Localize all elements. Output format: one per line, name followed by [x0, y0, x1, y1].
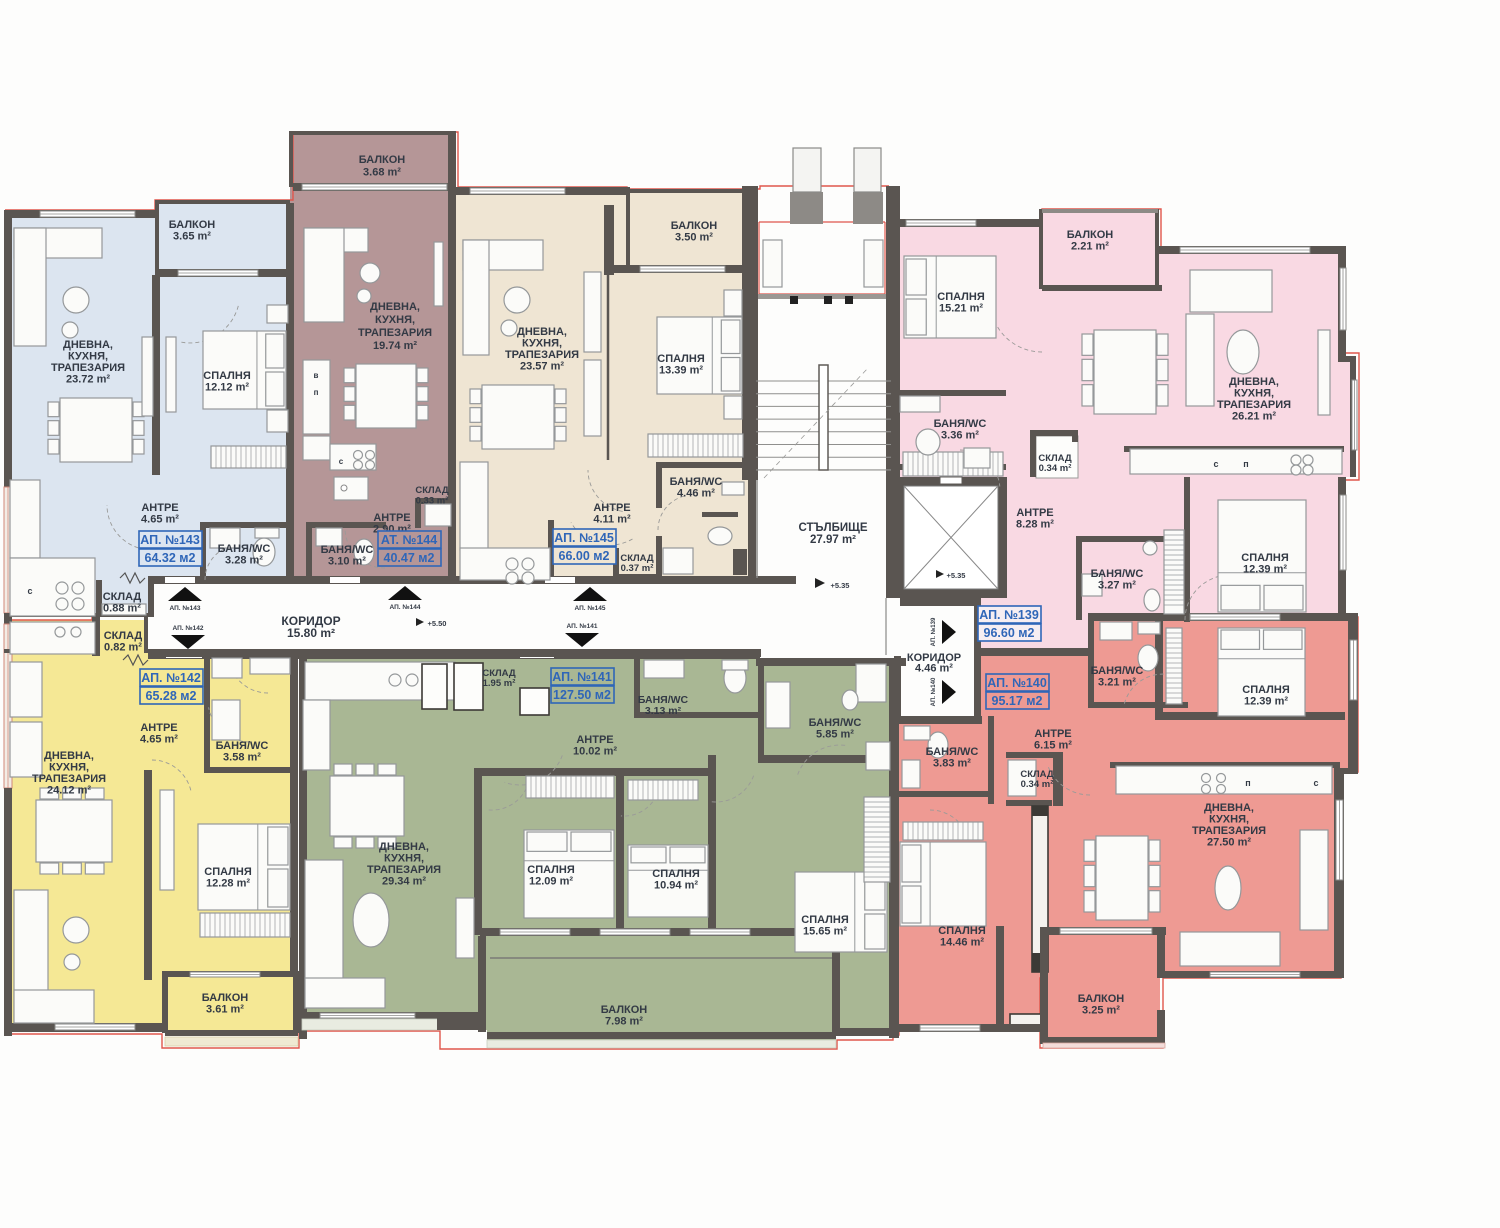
svg-text:п: п [314, 388, 319, 397]
svg-text:АНТРЕ: АНТРЕ [140, 722, 177, 734]
svg-text:23.72 m²: 23.72 m² [66, 374, 110, 386]
svg-text:ДНЕВНА,: ДНЕВНА, [1204, 802, 1254, 814]
svg-text:ДНЕВНА,: ДНЕВНА, [517, 326, 567, 338]
svg-text:4.11 m²: 4.11 m² [593, 514, 631, 526]
svg-text:БАНЯ/WC: БАНЯ/WC [670, 476, 723, 488]
svg-text:40.47 м2: 40.47 м2 [384, 551, 435, 565]
svg-text:АП. №139: АП. №139 [930, 617, 937, 646]
svg-text:ТРАПЕЗАРИЯ: ТРАПЕЗАРИЯ [358, 327, 432, 339]
svg-text:АТ. №144: АТ. №144 [381, 533, 437, 547]
svg-text:27.97 m²: 27.97 m² [810, 534, 856, 546]
svg-text:АНТРЕ: АНТРЕ [373, 512, 410, 524]
svg-text:СПАЛНЯ: СПАЛНЯ [203, 370, 251, 382]
svg-text:АП. №141: АП. №141 [552, 670, 612, 684]
svg-text:3.68 m²: 3.68 m² [363, 167, 401, 179]
svg-text:0.34 m²: 0.34 m² [1039, 463, 1072, 474]
svg-text:п: п [1243, 459, 1248, 469]
svg-text:0.37 m²: 0.37 m² [621, 563, 654, 574]
svg-text:ДНЕВНА,: ДНЕВНА, [379, 841, 429, 853]
svg-text:АП. №141: АП. №141 [567, 623, 598, 630]
svg-text:КУХНЯ,: КУХНЯ, [1234, 388, 1274, 400]
svg-text:БАНЯ/WC: БАНЯ/WC [1091, 568, 1144, 580]
svg-text:КУХНЯ,: КУХНЯ, [522, 338, 562, 350]
svg-text:БАЛКОН: БАЛКОН [601, 1004, 648, 1016]
svg-text:АНТРЕ: АНТРЕ [1016, 507, 1053, 519]
svg-text:0.82 m²: 0.82 m² [104, 642, 142, 654]
svg-text:СПАЛНЯ: СПАЛНЯ [937, 291, 985, 303]
svg-text:3.10 m²: 3.10 m² [328, 556, 366, 568]
svg-text:БАНЯ/WC: БАНЯ/WC [926, 746, 979, 758]
svg-text:12.39 m²: 12.39 m² [1244, 696, 1288, 708]
svg-text:3.61 m²: 3.61 m² [206, 1004, 244, 1016]
svg-text:12.12 m²: 12.12 m² [205, 382, 249, 394]
svg-text:СПАЛНЯ: СПАЛНЯ [1241, 552, 1289, 564]
svg-text:8.28 m²: 8.28 m² [1016, 519, 1054, 531]
svg-text:3.21 m²: 3.21 m² [1098, 677, 1136, 689]
svg-text:ТРАПЕЗАРИЯ: ТРАПЕЗАРИЯ [1217, 399, 1291, 411]
svg-text:7.98 m²: 7.98 m² [605, 1016, 643, 1028]
svg-text:19.74 m²: 19.74 m² [373, 340, 417, 352]
svg-text:АП. №140: АП. №140 [930, 677, 937, 706]
svg-text:3.65 m²: 3.65 m² [173, 231, 211, 243]
svg-text:СПАЛНЯ: СПАЛНЯ [801, 914, 849, 926]
svg-text:4.46 m²: 4.46 m² [677, 488, 715, 500]
svg-text:СПАЛНЯ: СПАЛНЯ [204, 866, 252, 878]
svg-text:ТРАПЕЗАРИЯ: ТРАПЕЗАРИЯ [51, 362, 125, 374]
svg-text:3.25 m²: 3.25 m² [1082, 1005, 1120, 1017]
svg-text:13.39 m²: 13.39 m² [659, 365, 703, 377]
svg-text:3.58 m²: 3.58 m² [223, 752, 261, 764]
svg-text:15.80 m²: 15.80 m² [287, 626, 335, 640]
svg-text:3.50 m²: 3.50 m² [675, 232, 713, 244]
svg-text:ДНЕВНА,: ДНЕВНА, [1229, 376, 1279, 388]
svg-text:БАНЯ/WC: БАНЯ/WC [216, 740, 269, 752]
svg-text:с: с [339, 457, 344, 466]
svg-text:ТРАПЕЗАРИЯ: ТРАПЕЗАРИЯ [367, 864, 441, 876]
svg-text:0.34 m²: 0.34 m² [1021, 779, 1054, 790]
svg-text:БАНЯ/WC: БАНЯ/WC [934, 418, 987, 430]
svg-text:АП. №145: АП. №145 [554, 531, 614, 545]
svg-text:БАЛКОН: БАЛКОН [671, 220, 718, 232]
svg-text:АП. №145: АП. №145 [575, 605, 606, 612]
svg-text:СТЪЛБИЩЕ: СТЪЛБИЩЕ [798, 522, 867, 534]
svg-text:КУХНЯ,: КУХНЯ, [375, 314, 415, 326]
svg-text:26.21 m²: 26.21 m² [1232, 411, 1276, 423]
svg-text:96.60 м2: 96.60 м2 [984, 626, 1035, 640]
svg-text:с: с [27, 586, 32, 596]
svg-text:127.50 м2: 127.50 м2 [553, 688, 611, 702]
svg-text:3.13 m²: 3.13 m² [645, 705, 682, 717]
svg-text:с: с [1213, 459, 1218, 469]
svg-text:12.39 m²: 12.39 m² [1243, 564, 1287, 576]
svg-text:29.34 m²: 29.34 m² [382, 876, 426, 888]
svg-text:+5.35: +5.35 [947, 571, 966, 580]
svg-text:6.15 m²: 6.15 m² [1034, 740, 1072, 752]
svg-text:АП. №144: АП. №144 [390, 604, 421, 611]
svg-text:СПАЛНЯ: СПАЛНЯ [1242, 684, 1290, 696]
svg-text:СКЛАД: СКЛАД [104, 630, 143, 642]
svg-text:15.65 m²: 15.65 m² [803, 926, 847, 938]
svg-text:СПАЛНЯ: СПАЛНЯ [527, 864, 575, 876]
svg-text:СКЛАД: СКЛАД [415, 485, 449, 496]
svg-text:24.12 m²: 24.12 m² [47, 785, 91, 797]
svg-text:3.36 m²: 3.36 m² [941, 430, 979, 442]
svg-text:+5.35: +5.35 [831, 581, 850, 590]
svg-text:14.46 m²: 14.46 m² [940, 937, 984, 949]
svg-text:КУХНЯ,: КУХНЯ, [384, 853, 424, 865]
svg-text:3.27 m²: 3.27 m² [1098, 580, 1136, 592]
svg-text:БАЛКОН: БАЛКОН [359, 154, 406, 166]
svg-text:АП. №143: АП. №143 [140, 533, 200, 547]
svg-text:ТРАПЕЗАРИЯ: ТРАПЕЗАРИЯ [32, 773, 106, 785]
svg-text:15.21 m²: 15.21 m² [939, 303, 983, 315]
svg-text:АНТРЕ: АНТРЕ [593, 502, 630, 514]
svg-text:БАНЯ/WC: БАНЯ/WC [809, 717, 862, 729]
svg-text:95.17 м2: 95.17 м2 [992, 694, 1043, 708]
svg-text:КУХНЯ,: КУХНЯ, [68, 351, 108, 363]
svg-text:АНТРЕ: АНТРЕ [141, 502, 178, 514]
svg-text:ТРАПЕЗАРИЯ: ТРАПЕЗАРИЯ [1192, 825, 1266, 837]
svg-text:с: с [1313, 778, 1318, 788]
svg-text:ДНЕВНА,: ДНЕВНА, [370, 301, 420, 313]
svg-text:АП. №139: АП. №139 [979, 608, 1039, 622]
svg-text:АНТРЕ: АНТРЕ [576, 734, 613, 746]
svg-text:2.21 m²: 2.21 m² [1071, 241, 1109, 253]
svg-text:БАЛКОН: БАЛКОН [1067, 229, 1114, 241]
svg-text:КУХНЯ,: КУХНЯ, [49, 762, 89, 774]
svg-text:10.94 m²: 10.94 m² [654, 880, 698, 892]
svg-text:0.33 m²: 0.33 m² [416, 496, 449, 507]
svg-text:АП. №142: АП. №142 [173, 625, 204, 632]
svg-text:БАЛКОН: БАЛКОН [1078, 993, 1125, 1005]
svg-text:БАНЯ/WC: БАНЯ/WC [321, 544, 374, 556]
svg-text:12.09 m²: 12.09 m² [529, 876, 573, 888]
svg-text:ТРАПЕЗАРИЯ: ТРАПЕЗАРИЯ [505, 349, 579, 361]
svg-text:СКЛАД: СКЛАД [103, 591, 142, 603]
svg-text:БАЛКОН: БАЛКОН [202, 992, 249, 1004]
svg-text:1.95 m²: 1.95 m² [483, 678, 516, 689]
svg-text:АП. №142: АП. №142 [141, 671, 201, 685]
svg-text:12.28 m²: 12.28 m² [206, 878, 250, 890]
svg-text:4.65 m²: 4.65 m² [140, 734, 178, 746]
svg-text:4.65 m²: 4.65 m² [141, 514, 179, 526]
svg-text:АП. №140: АП. №140 [987, 676, 1047, 690]
svg-text:КУХНЯ,: КУХНЯ, [1209, 814, 1249, 826]
svg-text:СПАЛНЯ: СПАЛНЯ [657, 353, 705, 365]
svg-text:5.85 m²: 5.85 m² [816, 729, 854, 741]
svg-text:65.28 м2: 65.28 м2 [146, 689, 197, 703]
svg-text:БАНЯ/WC: БАНЯ/WC [218, 543, 271, 555]
svg-text:п: п [1245, 778, 1250, 788]
svg-text:0.88 m²: 0.88 m² [103, 603, 141, 615]
svg-text:66.00 м2: 66.00 м2 [559, 549, 610, 563]
svg-text:в: в [314, 371, 319, 380]
svg-text:23.57 m²: 23.57 m² [520, 361, 564, 373]
svg-text:ДНЕВНА,: ДНЕВНА, [44, 750, 94, 762]
svg-text:3.28 m²: 3.28 m² [225, 555, 263, 567]
svg-text:10.02 m²: 10.02 m² [573, 746, 617, 758]
svg-text:СПАЛНЯ: СПАЛНЯ [652, 868, 700, 880]
svg-text:27.50 m²: 27.50 m² [1207, 837, 1251, 849]
svg-text:4.46 m²: 4.46 m² [915, 663, 953, 675]
svg-text:3.83 m²: 3.83 m² [933, 758, 971, 770]
svg-text:АНТРЕ: АНТРЕ [1034, 728, 1071, 740]
svg-text:СПАЛНЯ: СПАЛНЯ [938, 925, 986, 937]
svg-text:БАНЯ/WC: БАНЯ/WC [1091, 665, 1144, 677]
svg-text:64.32 м2: 64.32 м2 [145, 551, 196, 565]
svg-text:АП. №143: АП. №143 [170, 605, 201, 612]
svg-text:+5.50: +5.50 [428, 619, 447, 628]
svg-text:ДНЕВНА,: ДНЕВНА, [63, 339, 113, 351]
svg-text:БАЛКОН: БАЛКОН [169, 219, 216, 231]
